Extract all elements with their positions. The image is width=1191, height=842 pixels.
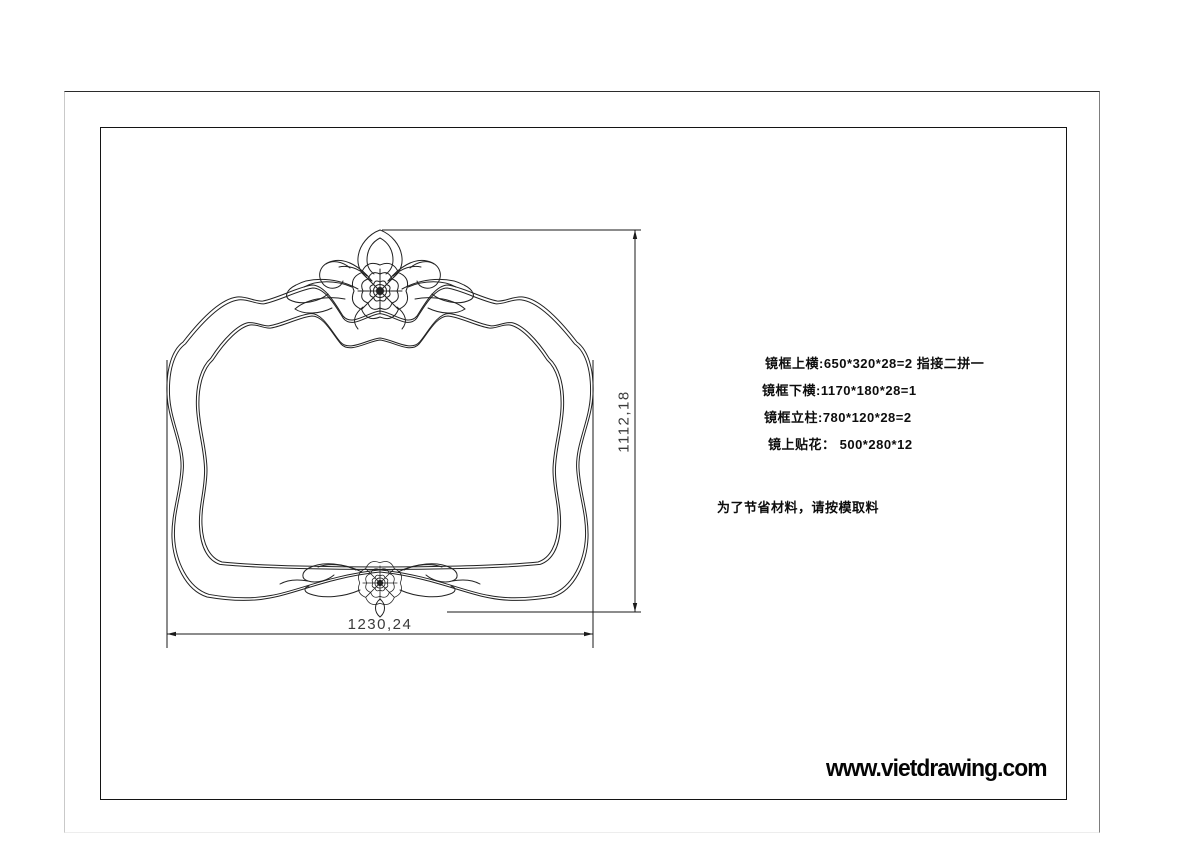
cut-list-item: 镜框立柱:780*120*28=2 [761,404,984,431]
cut-list-item: 镜框下横:1170*180*28=1 [761,377,984,404]
cut-list-item: 镜上贴花： 500*280*12 [761,431,984,458]
dimension-width-label: 1230,24 [343,616,417,633]
dimension-height-label: 1112,18 [616,382,633,462]
material-note: 为了节省材料，请按模取料 [717,497,879,516]
frame-opening-contour [196,314,563,570]
cut-list-item: 镜框上横:650*320*28=2 指接二拼一 [761,350,984,377]
frame-outer-contour [167,285,593,601]
mirror-frame-drawing [0,0,1191,842]
cad-drawing-canvas: 1230,24 1112,18 镜框上横:650*320*28=2 指接二拼一 … [0,0,1191,842]
bottom-ornament [280,561,480,617]
watermark-text: www.vietdrawing.com [826,755,1047,783]
cut-list: 镜框上横:650*320*28=2 指接二拼一 镜框下横:1170*180*28… [761,350,984,458]
